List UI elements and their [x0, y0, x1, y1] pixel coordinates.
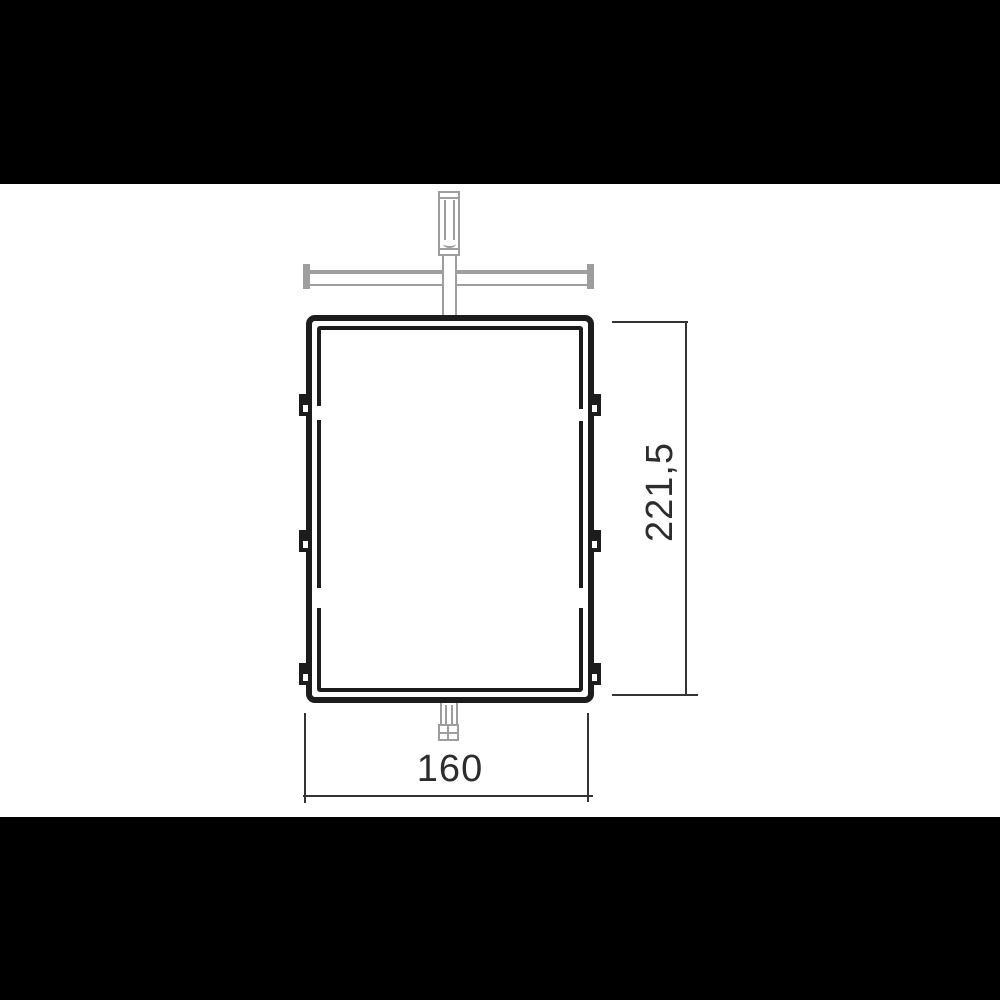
frame-inner-gap	[577, 409, 584, 421]
clip-right-middle	[593, 530, 601, 552]
crossbar-left-cap	[303, 264, 310, 289]
bottom-stub-body	[440, 703, 458, 725]
rod-inner-line-right	[453, 200, 455, 240]
clip-notch	[303, 674, 308, 681]
crossbar-right-cap	[587, 264, 594, 289]
mounting-rod-lower	[442, 254, 457, 317]
bottom-stub-cap	[438, 724, 459, 741]
frame-inner-gap	[577, 588, 584, 608]
dim-width-ext-right	[587, 713, 589, 802]
clip-right-top	[593, 394, 601, 416]
letterbox-top	[0, 0, 1000, 184]
dim-width-line	[303, 795, 593, 797]
frame-inner-gap	[316, 406, 323, 420]
dim-height-ext-top	[612, 321, 688, 323]
frame-inner	[317, 326, 583, 692]
clip-notch	[303, 405, 308, 412]
clip-left-bottom	[299, 663, 307, 685]
clip-notch	[592, 541, 597, 548]
bottom-stub-inner-line-right	[451, 705, 453, 725]
bottom-stub-inner-line-left	[445, 705, 447, 725]
clip-notch	[592, 674, 597, 681]
rod-taper-arc	[443, 240, 456, 248]
dim-width-ext-left	[304, 713, 306, 803]
dim-height-line	[685, 321, 687, 696]
clip-notch	[303, 541, 308, 548]
drawing-canvas: 160 221,5	[0, 0, 1000, 1000]
dim-height-label: 221,5	[640, 412, 680, 572]
clip-right-bottom	[593, 663, 601, 685]
rod-joint-line-lower	[438, 254, 460, 256]
rod-joint-line-upper	[438, 248, 460, 250]
dim-width-label: 160	[370, 748, 530, 791]
clip-notch	[592, 405, 597, 412]
clip-left-middle	[299, 530, 307, 552]
rod-inner-line-left	[444, 200, 446, 240]
clip-left-top	[299, 394, 307, 416]
rod-cap-line	[438, 197, 460, 199]
frame-inner-gap	[316, 588, 323, 608]
letterbox-bottom	[0, 817, 1000, 1000]
stub-cap-vline	[447, 726, 449, 739]
